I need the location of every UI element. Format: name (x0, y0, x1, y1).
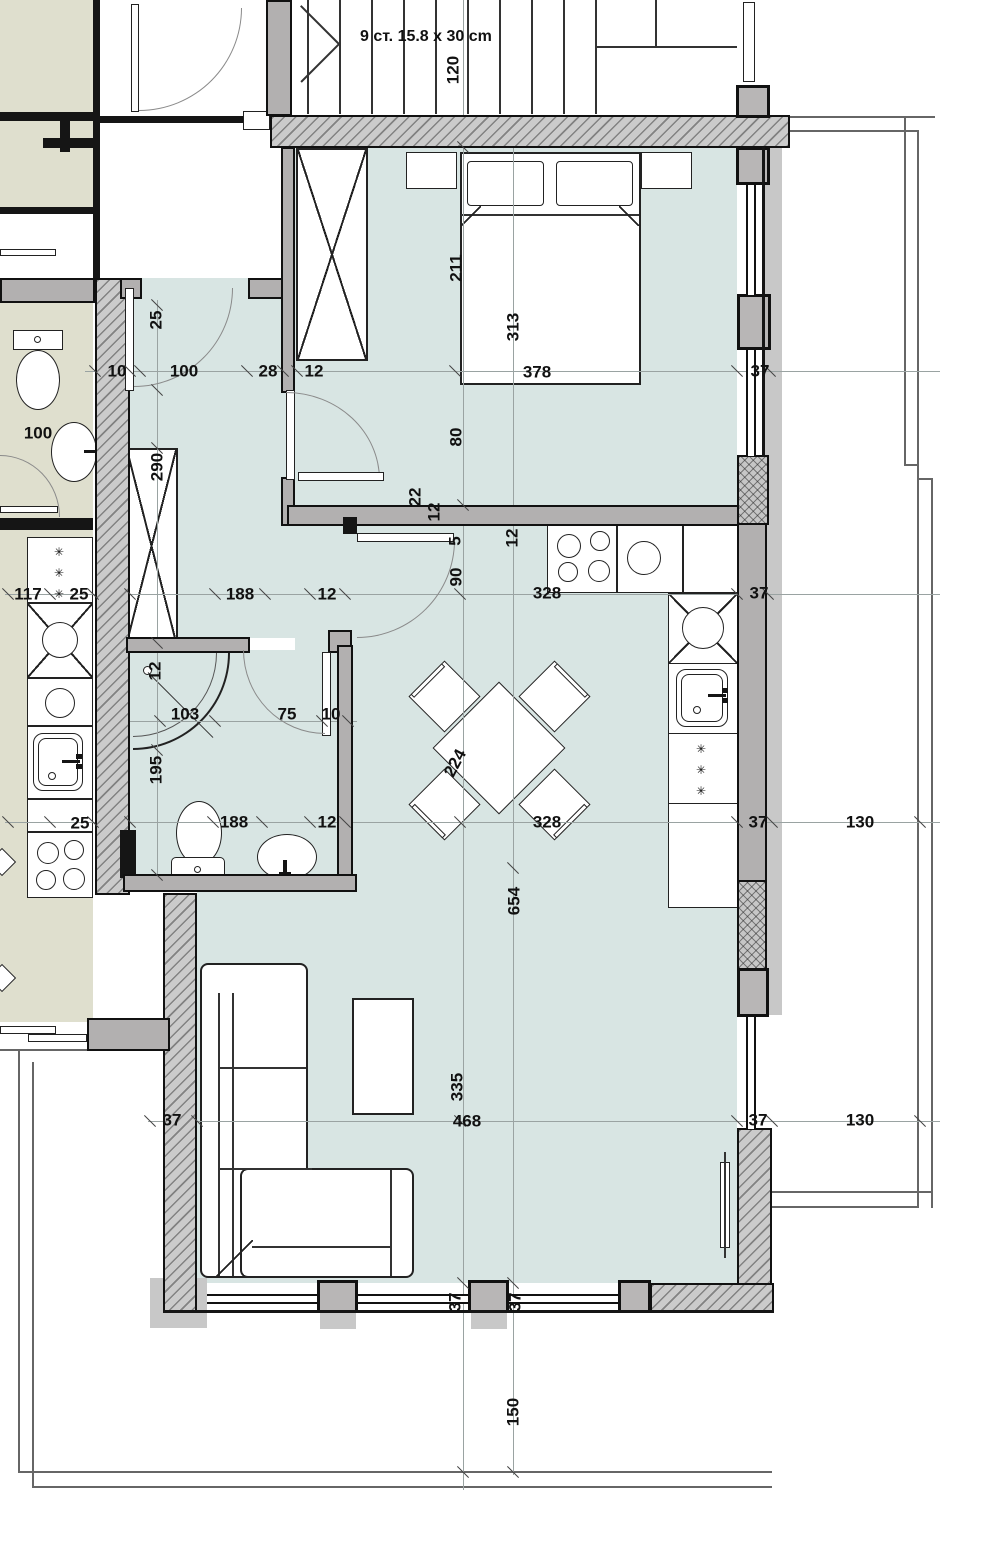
dimension-label: 10 (108, 363, 127, 380)
faucet-icon (76, 754, 82, 759)
bathroom-wall-top (126, 637, 250, 653)
dimension-label: 130 (846, 814, 874, 831)
dimension-label: 37 (447, 1293, 464, 1312)
balcony-edge (18, 1471, 772, 1473)
bed-fold-left (461, 206, 481, 226)
neighbor-corner-basin (42, 622, 78, 658)
dim-line (5, 822, 940, 823)
bedroom-west-wall (281, 147, 295, 393)
stair-landing-line (655, 0, 657, 46)
neighbor-balcony-door (0, 1026, 56, 1034)
living-window-south (207, 1294, 317, 1304)
dimension-label: 37 (507, 1293, 524, 1312)
sink-drain (693, 706, 701, 714)
stove-burner (64, 840, 84, 860)
stair-tread-line (403, 0, 405, 114)
neighbor-room-floor (0, 0, 93, 112)
balcony-edge (904, 116, 906, 466)
dimension-label: 378 (523, 364, 551, 381)
dimension-label: 117 (14, 586, 41, 603)
stair-landing-line (595, 46, 737, 48)
dimension-label: 80 (448, 428, 465, 447)
nightstand-left (406, 152, 457, 189)
stair-tread-line (531, 0, 533, 114)
dimension-label: 12 (426, 503, 443, 522)
column (737, 294, 771, 350)
counter-basin (627, 541, 661, 575)
faucet-icon (76, 764, 82, 769)
faucet-icon (722, 698, 728, 703)
stair-tread-line (339, 0, 341, 114)
exterior-wall-bottom-right (650, 1283, 774, 1313)
balcony-edge (32, 1486, 772, 1488)
pier-nub (471, 1313, 507, 1329)
dimension-label: 5 (447, 536, 464, 545)
dim-line (148, 1121, 940, 1122)
dimension-label: 37 (163, 1112, 182, 1129)
balcony-edge (772, 1191, 932, 1193)
sliding-door-panel (298, 472, 384, 481)
neighbor-counter-basin (45, 688, 75, 718)
connector-wall (87, 1018, 170, 1051)
balcony-edge (917, 130, 919, 466)
dimension-label: 290 (149, 453, 166, 481)
corridor-wall (100, 116, 245, 123)
dimension-label: 12 (318, 586, 337, 603)
sofa-cushion-line (218, 1168, 312, 1170)
bed-blanket-line (461, 214, 639, 216)
wall-notch (343, 517, 357, 534)
dimension-label: 28 (259, 363, 278, 380)
toilet-bowl (176, 801, 222, 865)
sofa-cushion-line (252, 1246, 392, 1248)
window-pier (317, 1280, 358, 1313)
dimension-label: 75 (278, 706, 297, 723)
pier-crosshatch (737, 455, 769, 525)
neighbor-stove (27, 832, 93, 898)
stove-burner (557, 534, 581, 558)
balcony-edge (772, 1206, 918, 1208)
window-sill-line-right (762, 147, 765, 457)
toilet-button (34, 336, 41, 343)
balcony-edge (32, 1062, 34, 1487)
balcony-edge (917, 464, 919, 1208)
fridge-symbol: ✳✳✳ (52, 545, 66, 608)
pier-crosshatch (737, 880, 767, 970)
column (737, 968, 769, 1017)
stair-tread-line (563, 0, 565, 114)
kitchen-counter (683, 523, 739, 593)
dimension-label: 188 (220, 814, 248, 831)
neighbor-door-leaf (0, 249, 56, 256)
dim-line (5, 594, 940, 595)
neighbor-wall (0, 207, 98, 214)
sofa-corner-line (216, 1240, 253, 1277)
neighbor-balcony-door (28, 1034, 87, 1042)
dim-line (463, 0, 464, 1490)
dimension-label: 37 (750, 585, 769, 602)
pillow-left (467, 161, 544, 206)
window-sill-line (163, 1310, 774, 1313)
balcony-edge (772, 116, 935, 118)
dimension-label: 468 (453, 1113, 481, 1130)
dimension-label: 328 (533, 585, 561, 602)
toilet-button (194, 866, 201, 873)
balcony-edge (931, 478, 933, 1208)
balcony-edge (772, 130, 919, 132)
bedroom-wardrobe (296, 148, 368, 361)
dimension-label: 150 (505, 1398, 522, 1426)
stair-tread-line (595, 0, 597, 114)
dimension-label: 120 (445, 56, 462, 84)
pier-nub (320, 1313, 356, 1329)
dimension-label: 37 (751, 363, 770, 380)
balcony-edge (904, 464, 918, 466)
bathroom-wall-right (337, 645, 353, 891)
bedroom-window (746, 185, 756, 295)
dimension-label: 195 (148, 756, 165, 784)
dimension-label: 103 (171, 706, 199, 723)
sofa-join-patch (244, 1171, 306, 1275)
window-pier (468, 1280, 509, 1313)
neighbor-wall (43, 138, 98, 148)
neighbor-wall (0, 112, 98, 121)
stairwell-wall (266, 0, 292, 116)
dimension-label: 25 (148, 311, 165, 330)
stair-tread-line (371, 0, 373, 114)
dimension-label: 328 (533, 814, 561, 831)
stove-burner (590, 531, 610, 551)
dimension-label: 12 (318, 814, 337, 831)
sofa-armrest-line (390, 1170, 392, 1276)
pillow-right (556, 161, 633, 206)
sofa-back-line (218, 993, 220, 1276)
neighbor-bath-wall (0, 278, 95, 303)
sofa-cushion-line (218, 1067, 306, 1069)
wall-jog (120, 830, 136, 878)
dimension-label: 90 (448, 568, 465, 587)
dimension-label: 37 (749, 1112, 768, 1129)
faucet-icon (722, 688, 728, 693)
bed-fold-right (619, 206, 639, 226)
dimension-label: 654 (506, 887, 523, 915)
dimension-label: 37 (749, 814, 768, 831)
stair-tread-line (467, 0, 469, 114)
stove-burner (63, 868, 85, 890)
kitchen-sink-inner (681, 674, 723, 722)
stove-burner (558, 562, 578, 582)
dimension-label: 22 (407, 488, 424, 507)
dimension-label: 100 (24, 425, 52, 442)
stove-burner (588, 560, 610, 582)
dimension-label: 25 (70, 586, 89, 603)
column (736, 85, 770, 118)
dimension-label: 335 (449, 1073, 466, 1101)
dimension-label: 100 (170, 363, 198, 380)
balcony-edge (18, 1050, 20, 1472)
living-window-south (509, 1294, 618, 1304)
kitchen-counter-end (668, 803, 738, 908)
dim-line (157, 300, 158, 878)
dimension-label: 211 (448, 254, 465, 281)
dimension-label: 10 (322, 706, 341, 723)
stair-tread-line (435, 0, 437, 114)
faucet-icon (708, 694, 726, 697)
dimension-label: 130 (846, 1112, 874, 1129)
balcony-edge (917, 478, 931, 480)
exterior-wall-top (270, 115, 790, 148)
balcony-edge (0, 1049, 87, 1051)
neighbor-room2-floor (0, 121, 93, 207)
radiator-line (724, 1152, 726, 1258)
neighbor-entry-door-leaf (131, 4, 139, 112)
neighbor-toilet-bowl (16, 350, 60, 410)
dimension-label: 12 (305, 363, 324, 380)
dimension-label: 25 (71, 815, 90, 832)
stair-tread-line (499, 0, 501, 114)
dimension-label: 313 (505, 313, 522, 341)
stair-railing (743, 2, 755, 82)
dimension-label: 188 (226, 586, 254, 603)
fridge-symbol: ✳✳✳ (694, 742, 708, 805)
faucet-icon (62, 760, 80, 763)
coffee-table (352, 998, 414, 1115)
floor-plan: 9 ст. 15.8 x 30 cm ✳✳✳ (0, 0, 1000, 1566)
window-pier (618, 1280, 651, 1313)
neighbor-bath-wall (0, 518, 93, 530)
exterior-wall-left (163, 893, 197, 1313)
dimension-label: 12 (504, 529, 521, 548)
stair-tread-line (307, 0, 309, 114)
corner-unit-basin (682, 607, 724, 649)
sink-drain (48, 772, 56, 780)
stove-burner (37, 842, 59, 864)
sofa-back-line (232, 993, 234, 1276)
nightstand-right (641, 152, 692, 189)
dimension-label: 12 (147, 662, 164, 681)
neighbor-entry-door-swing (139, 8, 242, 111)
stove-burner (36, 870, 56, 890)
stairs-annotation: 9 ст. 15.8 x 30 cm (360, 28, 492, 46)
